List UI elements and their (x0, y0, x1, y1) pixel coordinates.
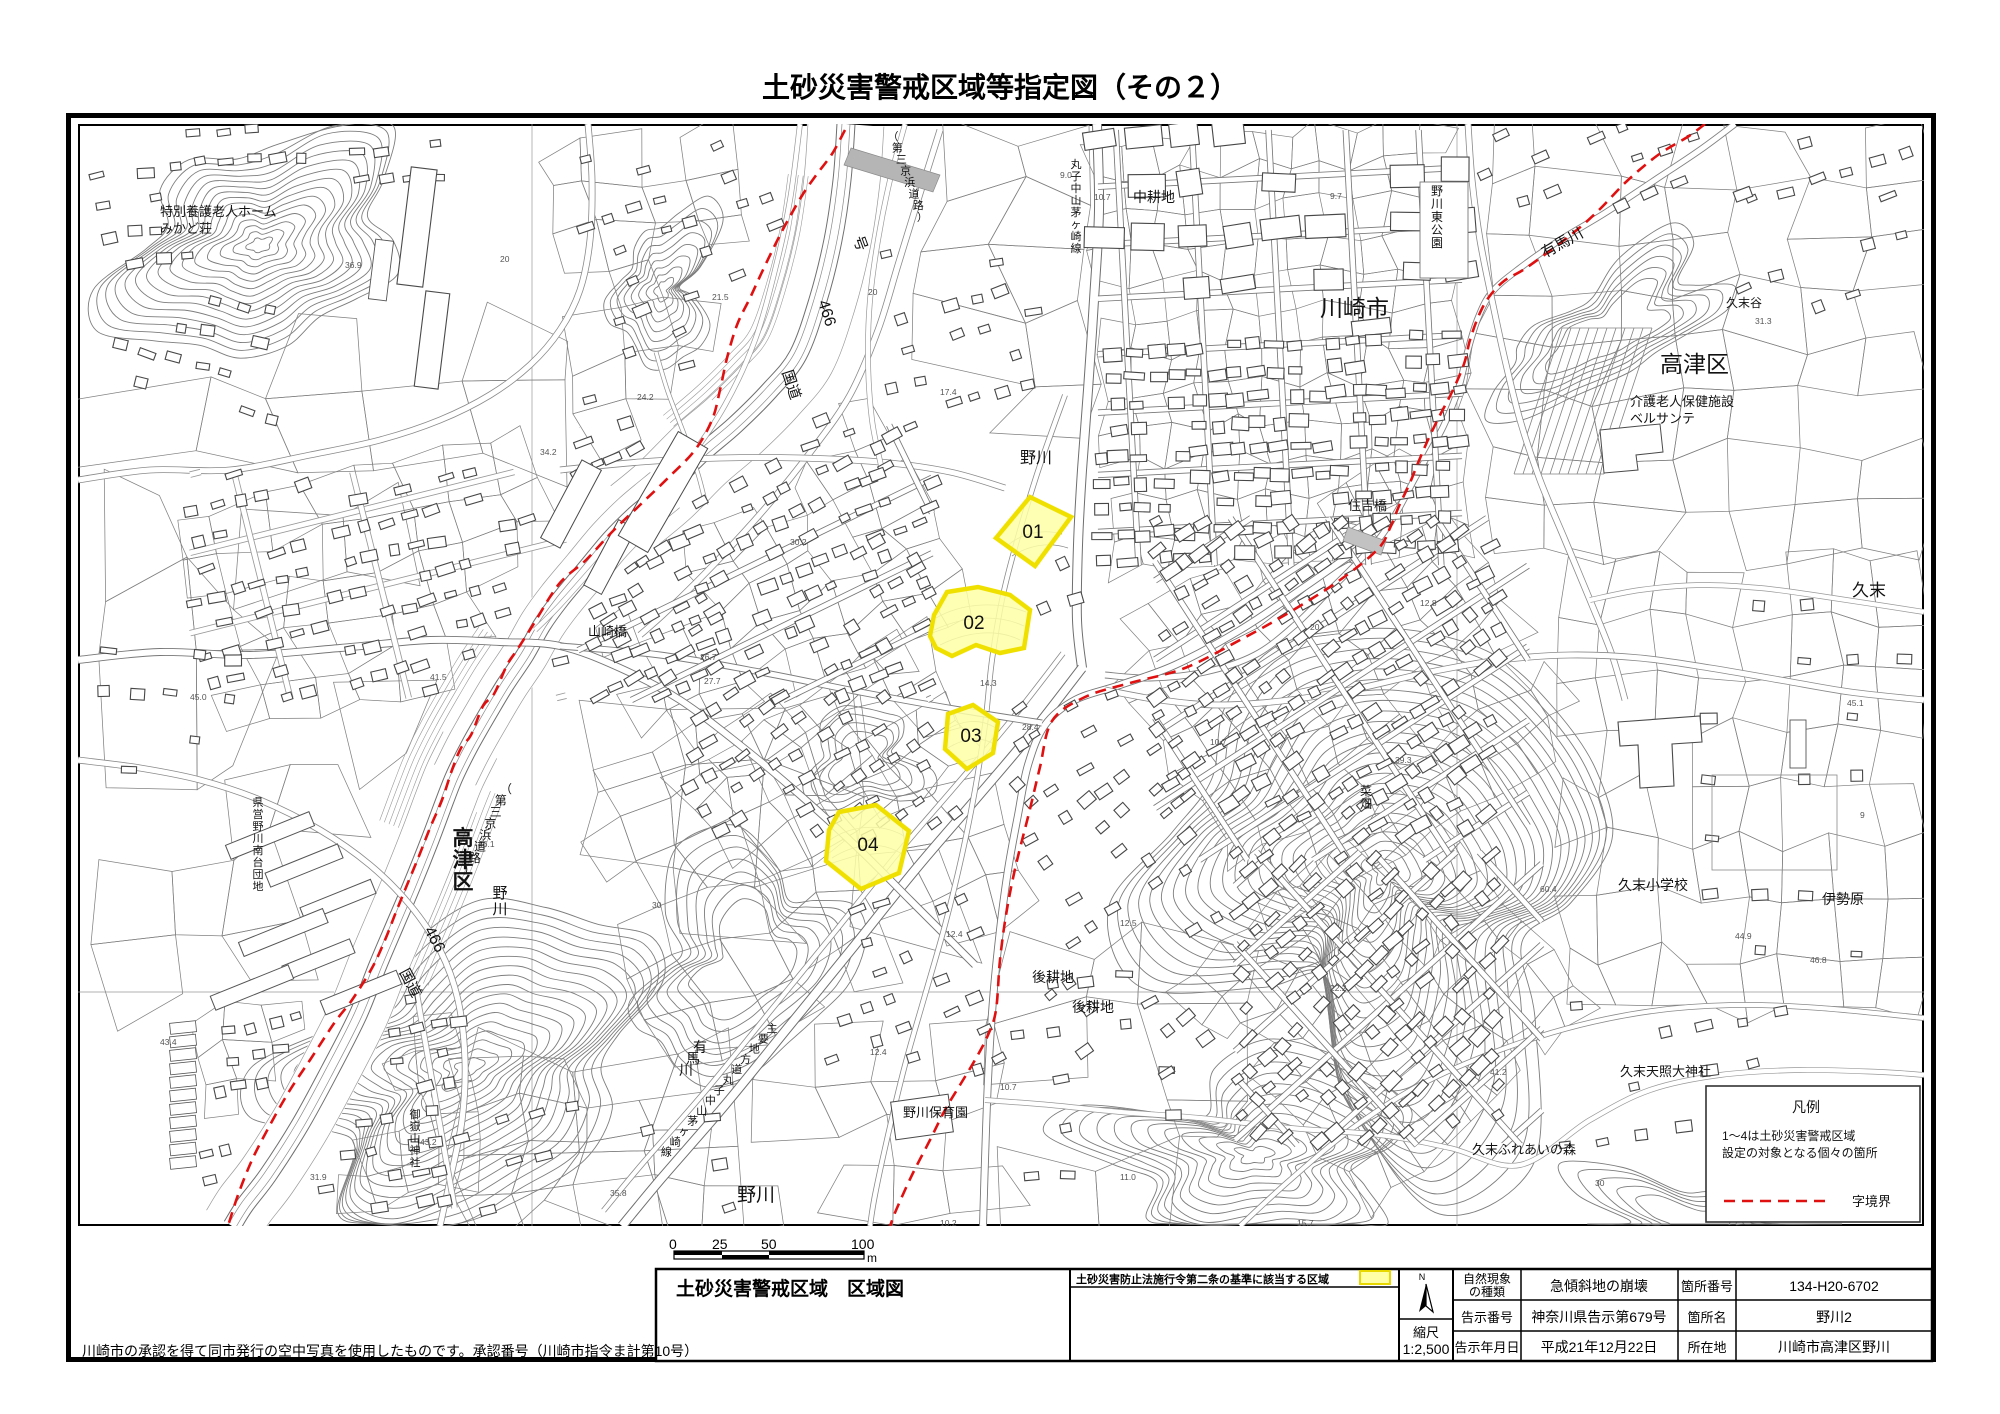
svg-text:60.4: 60.4 (1540, 884, 1557, 894)
svg-text:46.8: 46.8 (1810, 955, 1827, 965)
svg-text:自然現象: 自然現象 (1463, 1271, 1511, 1286)
svg-text:22.2: 22.2 (1330, 983, 1347, 993)
svg-text:34.2: 34.2 (540, 447, 557, 457)
svg-text:有馬川: 有馬川 (679, 1039, 707, 1078)
svg-text:久末谷: 久末谷 (1726, 296, 1762, 310)
svg-text:告示年月日: 告示年月日 (1454, 1340, 1519, 1355)
svg-text:12.5: 12.5 (1120, 918, 1137, 928)
svg-text:31.9: 31.9 (310, 1172, 327, 1182)
svg-text:10.7: 10.7 (1210, 737, 1227, 747)
svg-text:9: 9 (1860, 810, 1865, 820)
svg-text:住吉橋: 住吉橋 (1348, 498, 1387, 513)
svg-text:1:2,500: 1:2,500 (1403, 1341, 1450, 1357)
svg-text:後耕地: 後耕地 (1072, 999, 1114, 1015)
svg-text:10.2: 10.2 (940, 1218, 957, 1226)
svg-text:41.2: 41.2 (1490, 1067, 1507, 1077)
svg-text:川崎市高津区野川: 川崎市高津区野川 (1778, 1339, 1890, 1355)
svg-text:10.7: 10.7 (1094, 192, 1111, 202)
svg-text:12.8: 12.8 (1420, 598, 1437, 608)
svg-text:川崎市: 川崎市 (1320, 295, 1389, 321)
svg-text:20: 20 (1310, 622, 1320, 632)
svg-text:凡例: 凡例 (1792, 1099, 1820, 1115)
svg-text:土砂災害警戒区域 区域図: 土砂災害警戒区域 区域図 (676, 1277, 904, 1300)
svg-text:21.5: 21.5 (712, 292, 729, 302)
svg-text:菜畑: 菜畑 (1360, 784, 1372, 811)
svg-text:野川: 野川 (492, 885, 507, 918)
svg-text:伊勢原: 伊勢原 (1822, 891, 1864, 907)
svg-text:久末: 久末 (1852, 581, 1886, 600)
svg-text:28.4: 28.4 (1022, 722, 1039, 732)
svg-text:みかど荘: みかど荘 (160, 221, 212, 236)
svg-text:36.9: 36.9 (345, 260, 362, 270)
svg-text:35.8: 35.8 (610, 1188, 627, 1198)
svg-text:久末小学校: 久末小学校 (1618, 877, 1688, 893)
svg-text:N: N (1419, 1272, 1426, 1282)
svg-text:高津区: 高津区 (1660, 351, 1729, 377)
svg-text:41.5: 41.5 (430, 672, 447, 682)
svg-text:野川東公園: 野川東公園 (1431, 184, 1443, 250)
svg-text:30: 30 (1595, 1178, 1605, 1188)
svg-text:9.7: 9.7 (1330, 191, 1342, 201)
svg-text:神奈川県告示第679号: 神奈川県告示第679号 (1531, 1309, 1666, 1325)
svg-text:設定の対象となる個々の箇所: 設定の対象となる個々の箇所 (1722, 1145, 1878, 1160)
svg-text:山崎橋: 山崎橋 (588, 624, 627, 639)
svg-text:03: 03 (960, 726, 981, 747)
svg-text:縮尺: 縮尺 (1413, 1325, 1439, 1340)
svg-text:12.4: 12.4 (870, 1047, 887, 1057)
svg-text:45.0: 45.0 (190, 692, 207, 702)
svg-text:02: 02 (963, 613, 984, 634)
svg-text:の種類: の種類 (1469, 1285, 1505, 1299)
svg-text:24.2: 24.2 (637, 392, 654, 402)
svg-text:土砂災害防止法施行令第二条の基準に該当する区域: 土砂災害防止法施行令第二条の基準に該当する区域 (1076, 1272, 1329, 1286)
svg-text:介護老人保健施設: 介護老人保健施設 (1630, 394, 1734, 409)
svg-text:134-H20-6702: 134-H20-6702 (1789, 1278, 1879, 1294)
svg-text:17.4: 17.4 (940, 387, 957, 397)
svg-text:30: 30 (652, 900, 662, 910)
svg-text:1～4は土砂災害警戒区域: 1～4は土砂災害警戒区域 (1722, 1128, 1855, 1143)
svg-text:ベルサンテ: ベルサンテ (1630, 411, 1695, 426)
svg-text:野川保育園: 野川保育園 (903, 1105, 968, 1120)
svg-text:43.2: 43.2 (420, 1137, 437, 1147)
svg-text:久末ふれあいの森: 久末ふれあいの森 (1472, 1142, 1576, 1157)
svg-text:箇所番号: 箇所番号 (1681, 1279, 1733, 1294)
svg-text:高津区: 高津区 (453, 826, 474, 894)
svg-text:10.7: 10.7 (1000, 1082, 1017, 1092)
svg-text:39.3: 39.3 (1395, 755, 1412, 765)
svg-text:丸子中山茅ヶ崎線: 丸子中山茅ヶ崎線 (1071, 158, 1082, 255)
svg-text:31.3: 31.3 (1755, 316, 1772, 326)
svg-text:27.7: 27.7 (704, 676, 721, 686)
svg-text:m: m (867, 1251, 877, 1265)
svg-text:字境界: 字境界 (1852, 1194, 1891, 1209)
svg-text:急傾斜地の崩壊: 急傾斜地の崩壊 (1550, 1278, 1648, 1294)
svg-text:所在地: 所在地 (1687, 1340, 1726, 1355)
svg-text:01: 01 (1022, 522, 1043, 543)
svg-text:後耕地: 後耕地 (1032, 969, 1074, 985)
svg-text:30.2: 30.2 (790, 537, 807, 547)
svg-text:44.9: 44.9 (1735, 931, 1752, 941)
svg-text:20: 20 (868, 287, 878, 297)
svg-text:43.4: 43.4 (160, 1037, 177, 1047)
svg-text:15.7: 15.7 (1297, 1218, 1314, 1226)
svg-text:45.1: 45.1 (1847, 698, 1864, 708)
svg-text:野川: 野川 (1020, 449, 1052, 467)
svg-text:箇所名: 箇所名 (1687, 1310, 1726, 1325)
svg-text:主要地方道丸子中山茅ヶ崎線: 主要地方道丸子中山茅ヶ崎線 (661, 1022, 778, 1159)
svg-text:久末天照大神社: 久末天照大神社 (1620, 1064, 1711, 1079)
svg-text:中耕地: 中耕地 (1133, 189, 1175, 205)
svg-text:04: 04 (857, 835, 879, 856)
svg-text:26.7: 26.7 (700, 652, 717, 662)
svg-text:特別養護老人ホーム: 特別養護老人ホーム (160, 204, 277, 219)
svg-text:11.0: 11.0 (1120, 1172, 1136, 1182)
svg-text:野川2: 野川2 (1816, 1309, 1852, 1325)
svg-text:御嶽山神社: 御嶽山神社 (410, 1107, 421, 1169)
svg-text:有馬川: 有馬川 (1539, 225, 1587, 262)
svg-text:告示番号: 告示番号 (1461, 1310, 1513, 1325)
svg-text:14.3: 14.3 (980, 678, 997, 688)
svg-text:平成21年12月22日: 平成21年12月22日 (1541, 1339, 1658, 1355)
svg-text:12.4: 12.4 (946, 929, 963, 939)
svg-text:県営野川南台団地: 県営野川南台団地 (253, 796, 264, 893)
svg-text:野川: 野川 (737, 1185, 775, 1206)
svg-text:20: 20 (500, 254, 510, 264)
